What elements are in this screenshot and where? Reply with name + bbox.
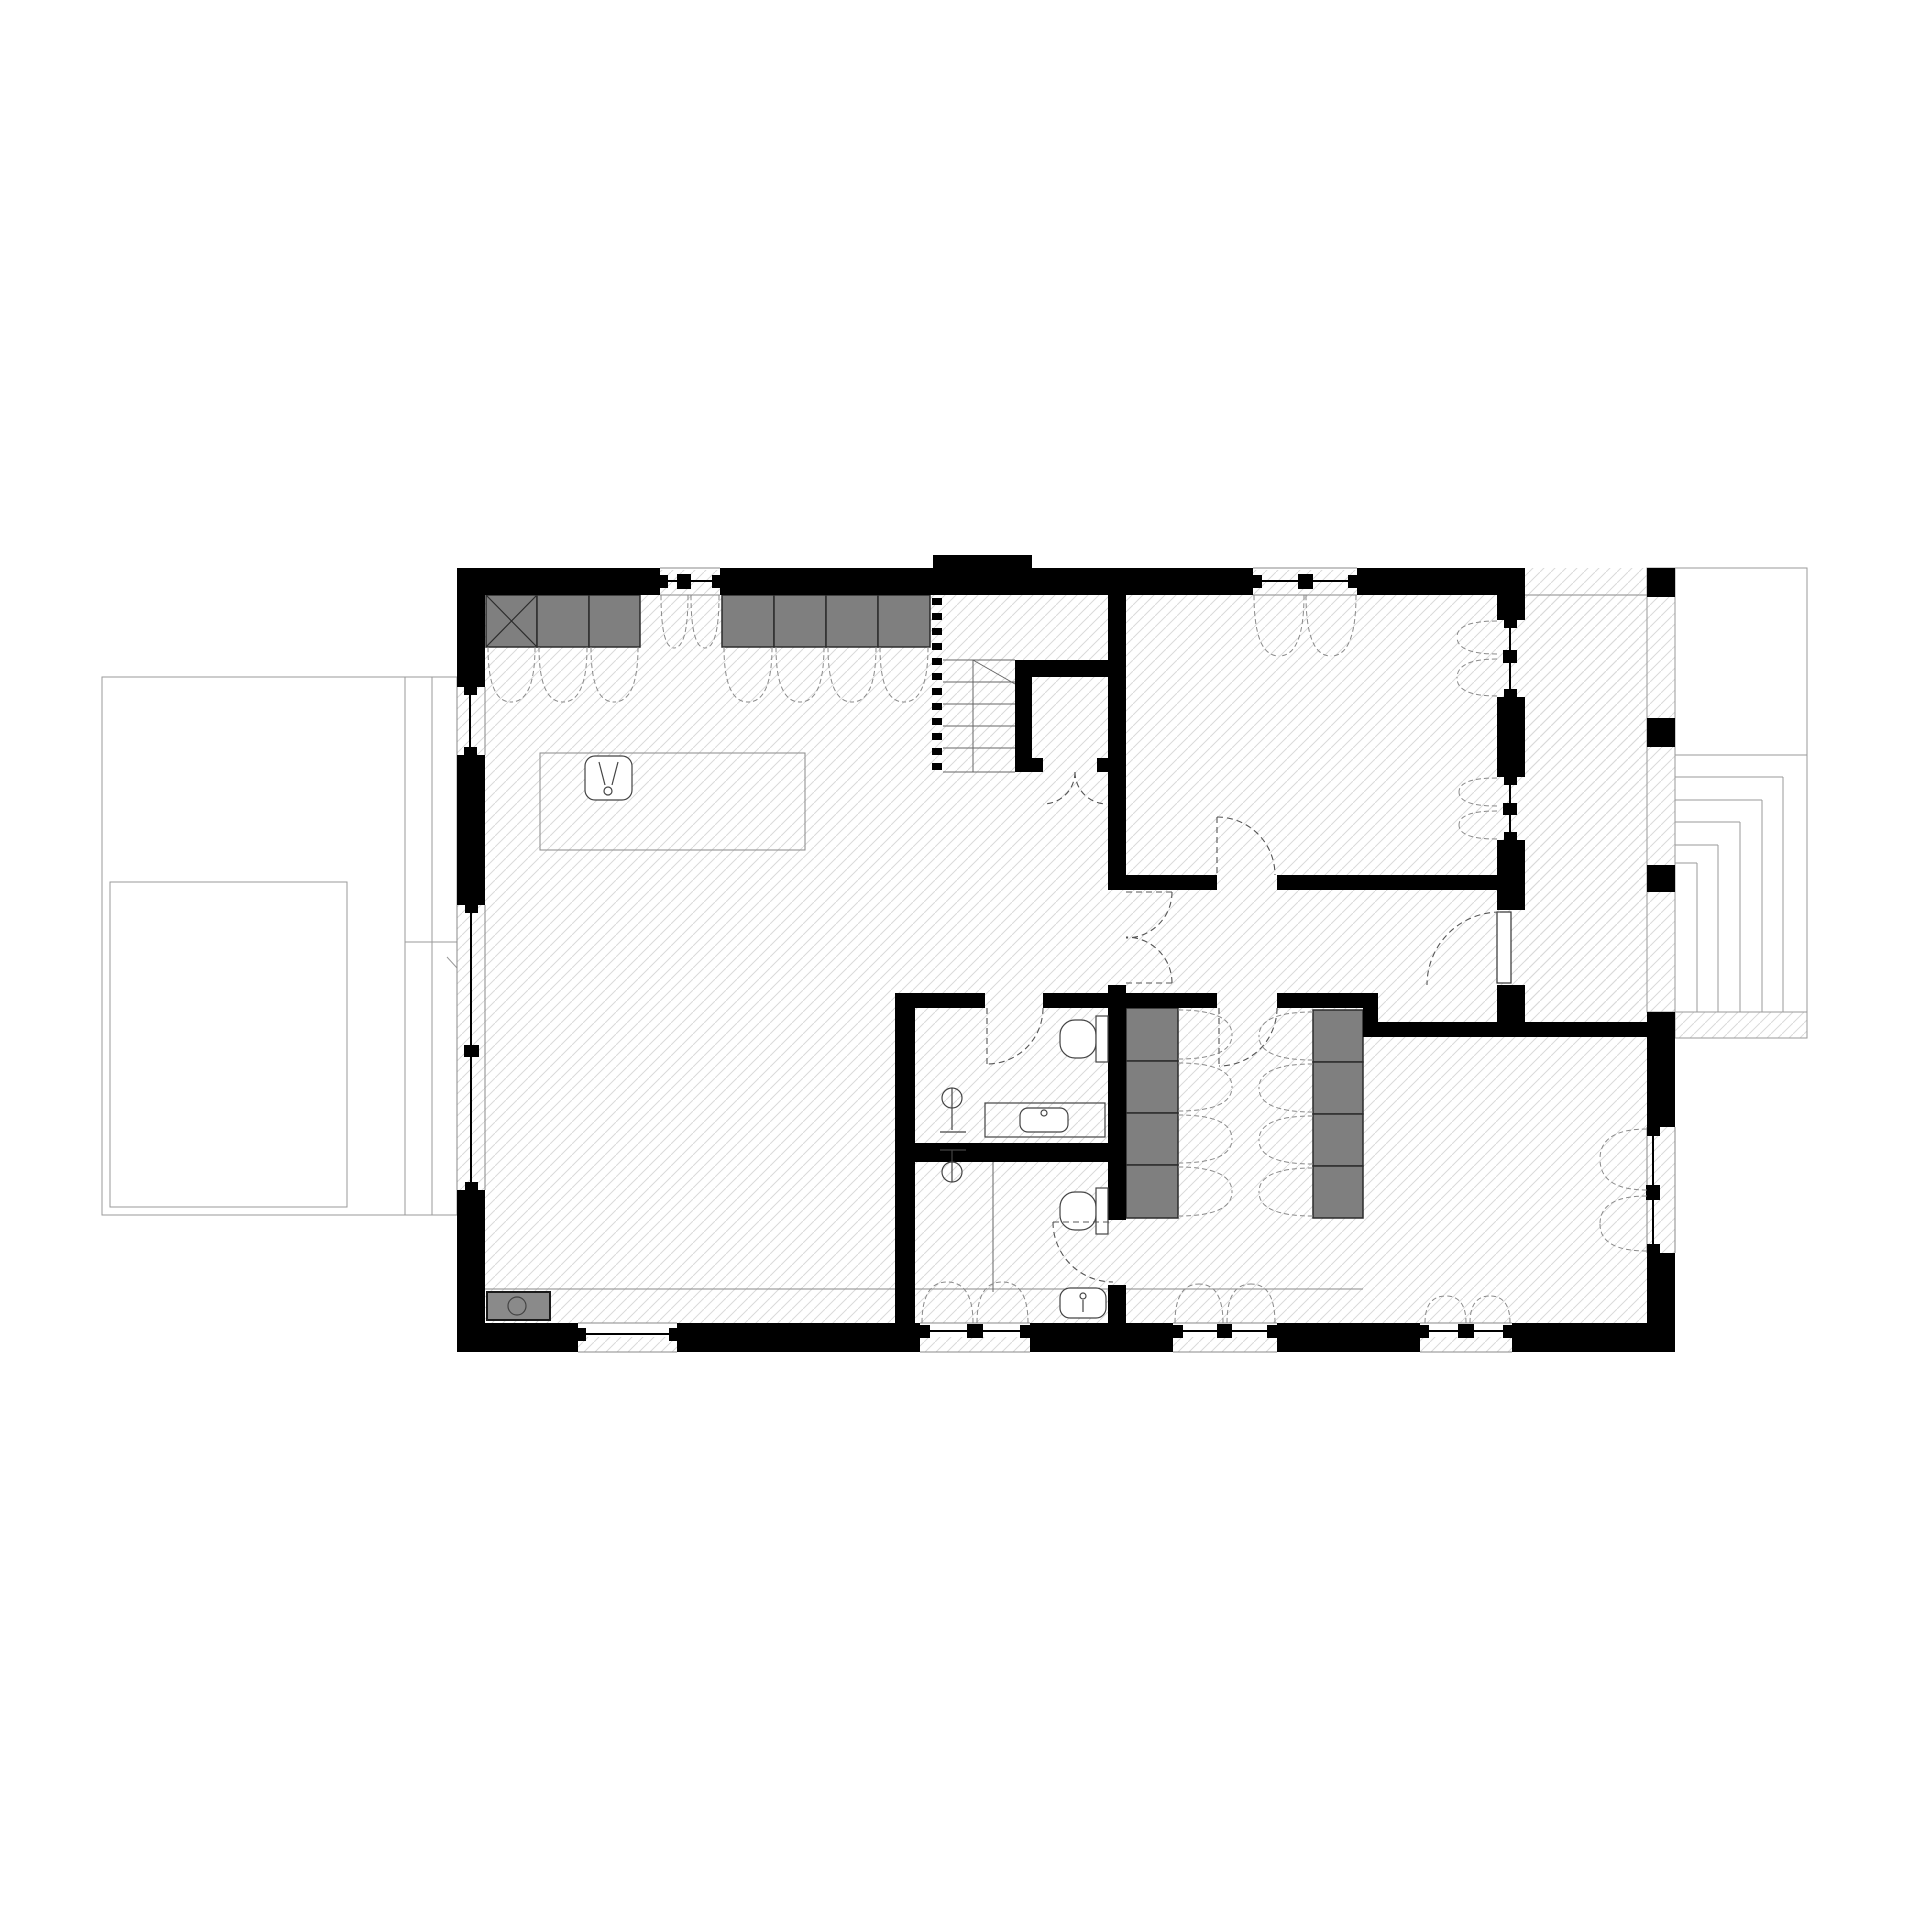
porch-post	[1647, 865, 1675, 892]
wardrobe-box	[1313, 1062, 1363, 1114]
toilet-bowl	[1060, 1020, 1096, 1058]
entry-door-leaf	[1497, 912, 1511, 983]
window-jamb	[1504, 832, 1517, 840]
drawing-sheet	[0, 0, 1920, 1920]
window-jamb	[1647, 1127, 1660, 1136]
window-mullion	[1298, 574, 1313, 589]
window-jamb	[1020, 1325, 1030, 1338]
window-jamb	[1267, 1325, 1277, 1338]
wall-bedroom1-east	[1497, 840, 1525, 910]
floor-hatch	[457, 568, 1807, 1352]
toilet-bowl	[1060, 1192, 1096, 1230]
deck-step-tick	[447, 957, 457, 968]
wardrobe-box	[1126, 1165, 1178, 1218]
kitchen-cabinet	[589, 595, 640, 647]
window-jamb	[464, 747, 477, 755]
wall-closet-north	[1277, 993, 1378, 1008]
window-jamb	[1504, 689, 1517, 697]
window-jamb	[1647, 1244, 1660, 1253]
wall-bedroom1-east	[1497, 697, 1525, 777]
floor-porch-landing	[1675, 1012, 1807, 1038]
stair-closet-west	[1015, 677, 1032, 772]
wall-north	[457, 568, 660, 595]
kitchen-cabinet	[826, 595, 878, 647]
window-jamb	[669, 1328, 677, 1341]
window-mullion	[1217, 1324, 1232, 1338]
wall-bedroom2-north	[1378, 1022, 1647, 1037]
toilet-tank	[1096, 1188, 1108, 1234]
wall-bedroom1-east	[1497, 595, 1525, 620]
wall-west	[457, 755, 485, 905]
wardrobe-box	[1126, 1113, 1178, 1165]
wall-south	[1030, 1323, 1173, 1352]
window-mullion	[464, 1045, 479, 1057]
window-jamb	[464, 687, 477, 695]
wardrobe-box	[1313, 1114, 1363, 1166]
deck-outline	[102, 677, 457, 1215]
vanity-basin	[1020, 1108, 1068, 1132]
wall-bath-north	[1043, 993, 1217, 1008]
wall-bath-divider	[895, 1143, 1126, 1162]
wall-north-chimney-bump	[933, 555, 1032, 568]
window-recess	[1173, 1337, 1277, 1352]
window-mullion	[677, 574, 691, 589]
wall-south	[677, 1323, 920, 1352]
wood-stove	[487, 1292, 550, 1320]
window-jamb	[1504, 777, 1517, 785]
wall-north	[1357, 568, 1525, 595]
window-jamb	[920, 1325, 930, 1338]
window-jamb	[712, 575, 720, 588]
stair-closet-north	[1015, 660, 1108, 677]
window-jamb	[1173, 1325, 1183, 1338]
wardrobe-box	[1126, 1061, 1178, 1113]
stair-closet-jamb	[1097, 758, 1108, 772]
window-jamb	[465, 905, 478, 913]
wall-east	[1647, 1253, 1675, 1352]
wall-east	[1647, 1012, 1675, 1127]
deck-inner-outline	[110, 882, 347, 1207]
kitchen-cabinet	[878, 595, 930, 647]
wall-bath-east	[1108, 1008, 1126, 1220]
kitchen-cabinet	[722, 595, 774, 647]
steps-upper-landing	[1675, 568, 1807, 755]
window-mullion	[1646, 1185, 1660, 1200]
wall-bedroom1-south	[1277, 875, 1497, 890]
window-mullion	[1503, 650, 1517, 663]
wall-bath-east	[1108, 1285, 1126, 1323]
wardrobe-box	[1126, 1008, 1178, 1061]
wall-south	[1277, 1323, 1420, 1352]
window-jamb	[1420, 1325, 1429, 1338]
window-jamb	[578, 1328, 586, 1341]
porch-post	[1647, 568, 1675, 597]
window-mullion	[1503, 803, 1517, 815]
floor-plan	[0, 0, 1920, 1920]
window-jamb	[465, 1182, 478, 1190]
wall-closet-connector	[1363, 1008, 1378, 1037]
floor-porch	[1525, 568, 1675, 1012]
toilet-tank	[1096, 1016, 1108, 1062]
kitchen-cabinet	[774, 595, 826, 647]
porch-post	[1647, 718, 1675, 747]
window-recess	[578, 1337, 677, 1352]
window-jamb	[660, 575, 668, 588]
island-sink	[585, 756, 632, 800]
wall-south	[457, 1323, 578, 1352]
kitchen-cabinet	[537, 595, 589, 647]
wardrobe-box	[1313, 1010, 1363, 1062]
window-jamb	[1503, 1325, 1512, 1338]
window-jamb	[1348, 575, 1357, 588]
stair-closet-jamb	[1032, 758, 1043, 772]
wall-west	[457, 568, 485, 687]
wall-north	[720, 568, 1253, 595]
window-recess	[920, 1337, 1030, 1352]
window-jamb	[1504, 620, 1517, 628]
window-mullion	[1458, 1324, 1474, 1338]
wall-stairwell	[1108, 595, 1126, 890]
window-recess	[1420, 1337, 1512, 1352]
window-jamb	[1253, 575, 1262, 588]
wardrobe-box	[1313, 1166, 1363, 1218]
wall-bedroom1-south	[1126, 875, 1217, 890]
window-mullion	[967, 1324, 983, 1338]
